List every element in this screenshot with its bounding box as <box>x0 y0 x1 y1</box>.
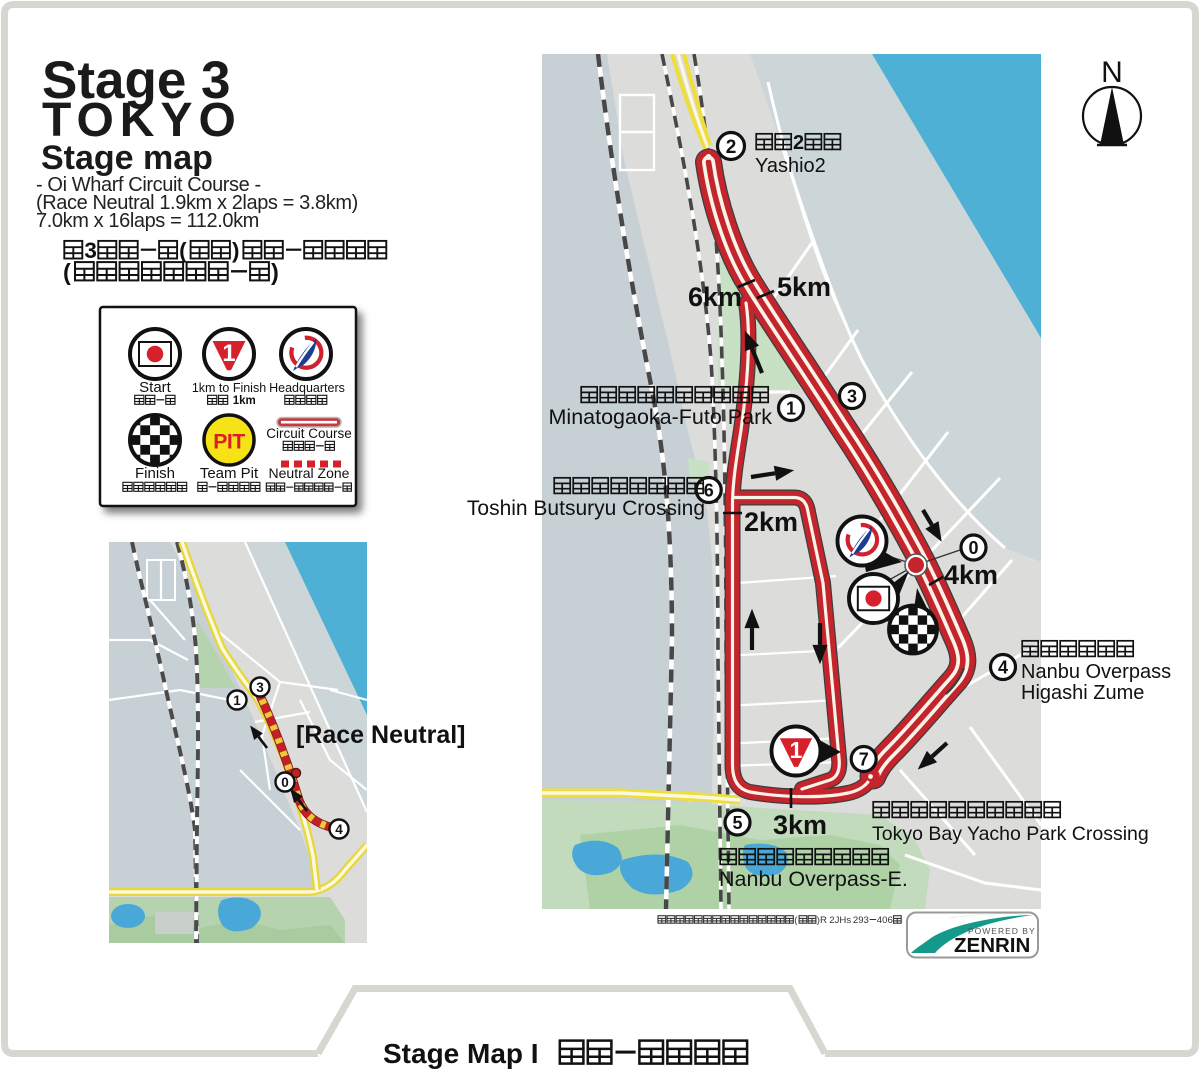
svg-text:2JHs: 2JHs <box>829 915 851 926</box>
svg-text:2: 2 <box>726 137 737 158</box>
svg-text:0: 0 <box>281 775 289 790</box>
svg-text:Yashio2: Yashio2 <box>755 155 826 177</box>
svg-text:)R: )R <box>817 915 827 926</box>
svg-text:Stage Map I: Stage Map I <box>383 1038 539 1069</box>
svg-text:Higashi Zume: Higashi Zume <box>1021 682 1144 704</box>
svg-text:Finish: Finish <box>135 465 175 482</box>
svg-text:): ) <box>271 259 279 285</box>
svg-text:ZENRIN: ZENRIN <box>954 934 1030 957</box>
svg-text:6: 6 <box>704 480 714 500</box>
svg-text:1: 1 <box>233 693 241 708</box>
svg-text:0: 0 <box>968 538 978 558</box>
svg-text:2: 2 <box>793 132 804 154</box>
svg-text:Minatogaoka-Futo Park: Minatogaoka-Futo Park <box>549 405 773 429</box>
svg-text:PIT: PIT <box>213 430 245 454</box>
svg-text:N: N <box>1101 56 1123 89</box>
svg-text:4: 4 <box>998 657 1008 677</box>
svg-text:3: 3 <box>84 238 97 263</box>
svg-text:1km to Finish: 1km to Finish <box>192 381 266 395</box>
svg-text:Stage map: Stage map <box>41 139 213 177</box>
svg-text:2km: 2km <box>744 507 798 537</box>
svg-text:[Race Neutral]: [Race Neutral] <box>296 721 466 749</box>
svg-text:7: 7 <box>859 749 869 769</box>
svg-text:Headquarters: Headquarters <box>269 381 345 395</box>
svg-text:Team Pit: Team Pit <box>200 465 259 482</box>
svg-text:3: 3 <box>847 386 857 406</box>
svg-text:1km: 1km <box>233 395 256 407</box>
svg-text:(: ( <box>63 259 71 285</box>
svg-text:1: 1 <box>786 398 796 418</box>
svg-text:3km: 3km <box>773 810 827 840</box>
svg-text:1: 1 <box>790 737 803 763</box>
svg-text:(: ( <box>179 238 187 263</box>
svg-text:4: 4 <box>335 822 343 837</box>
svg-text:Tokyo Bay Yacho Park Crossing: Tokyo Bay Yacho Park Crossing <box>872 823 1149 845</box>
svg-text:Neutral Zone: Neutral Zone <box>269 465 350 481</box>
svg-text:406: 406 <box>877 915 893 926</box>
svg-text:Start: Start <box>139 379 172 396</box>
svg-text:7.0km x 16laps = 112.0km: 7.0km x 16laps = 112.0km <box>36 210 259 232</box>
svg-text:4km: 4km <box>944 560 998 590</box>
svg-text:Circuit Course: Circuit Course <box>266 426 352 441</box>
svg-text:Nanbu Overpass-E.: Nanbu Overpass-E. <box>719 867 908 891</box>
svg-text:6km: 6km <box>688 282 742 312</box>
svg-text:5: 5 <box>732 813 742 833</box>
svg-text:): ) <box>232 238 240 263</box>
svg-text:1: 1 <box>222 340 235 367</box>
svg-text:3: 3 <box>256 680 264 695</box>
svg-text:5km: 5km <box>777 272 831 302</box>
svg-text:Toshin Butsuryu Crossing: Toshin Butsuryu Crossing <box>467 497 705 520</box>
svg-text:Nanbu Overpass: Nanbu Overpass <box>1021 661 1171 683</box>
svg-text:293: 293 <box>853 915 869 926</box>
